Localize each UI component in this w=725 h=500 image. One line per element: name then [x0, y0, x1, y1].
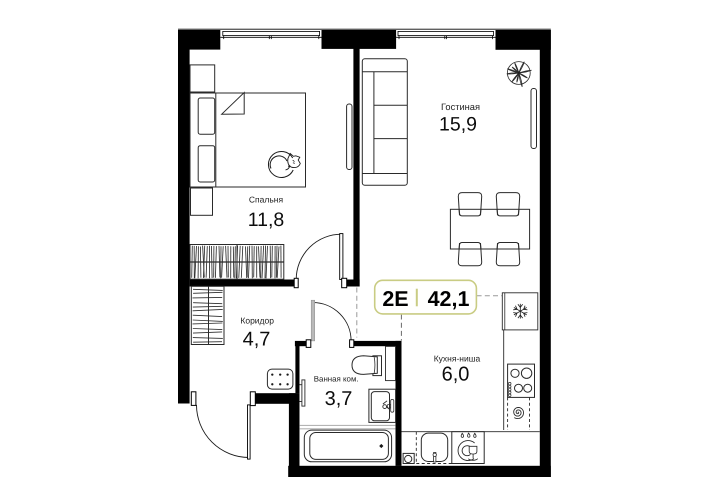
svg-text:11,8: 11,8 [248, 209, 285, 231]
svg-text:Гостиная: Гостиная [441, 102, 480, 112]
svg-text:Спальня: Спальня [249, 195, 284, 205]
svg-text:4,7: 4,7 [243, 328, 271, 350]
svg-text:15,9: 15,9 [439, 114, 477, 136]
svg-text:6,0: 6,0 [442, 364, 470, 386]
svg-text:42,1: 42,1 [428, 287, 470, 311]
svg-text:3,7: 3,7 [325, 388, 353, 410]
svg-text:Кухня-ниша: Кухня-ниша [434, 354, 481, 364]
svg-text:Ванная ком.: Ванная ком. [314, 375, 359, 384]
svg-text:Коридор: Коридор [240, 315, 274, 325]
svg-text:2E: 2E [382, 287, 408, 311]
